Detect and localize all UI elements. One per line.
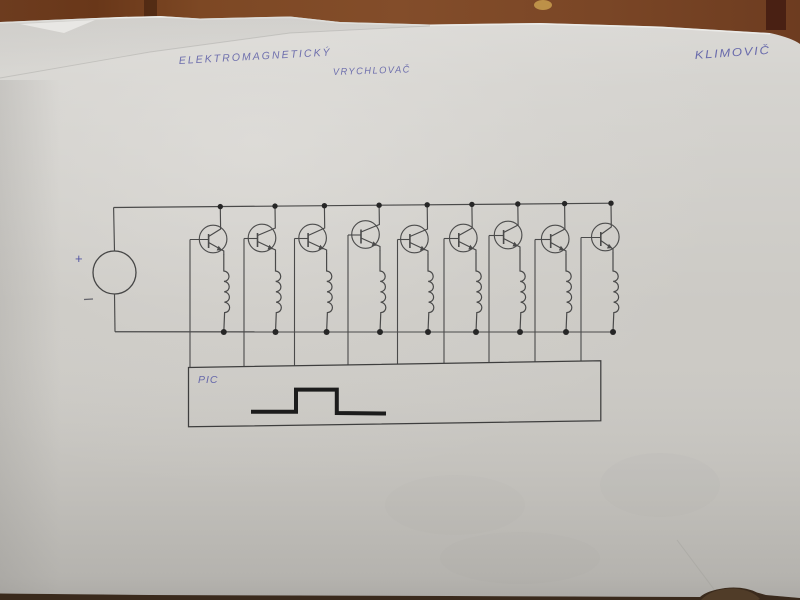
svg-text:+: + bbox=[75, 251, 83, 266]
svg-text:PIC: PIC bbox=[198, 374, 219, 386]
